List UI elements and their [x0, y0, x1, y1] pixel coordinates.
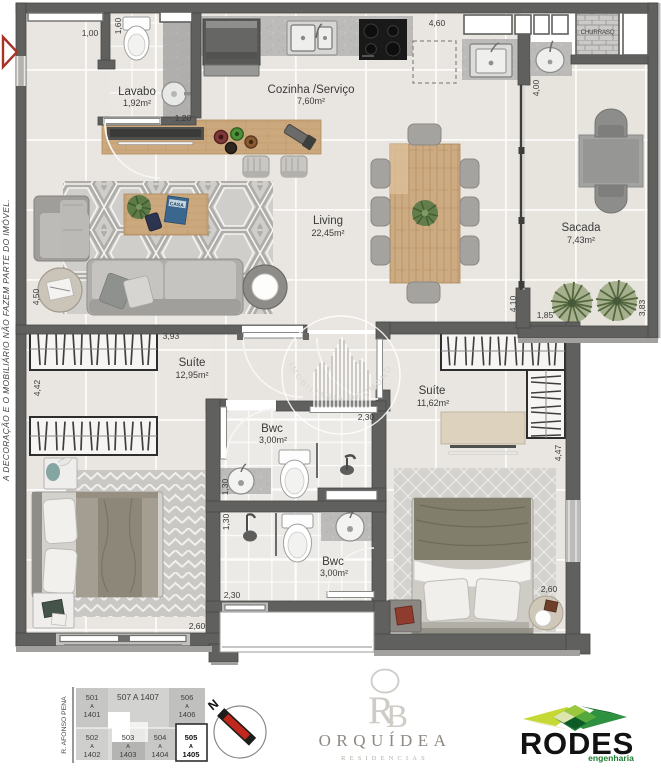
svg-text:3,83: 3,83 [637, 299, 647, 316]
svg-text:3,93: 3,93 [163, 331, 180, 341]
svg-text:506: 506 [181, 693, 194, 702]
svg-text:12,95m²: 12,95m² [175, 370, 208, 380]
svg-text:Sacada: Sacada [561, 222, 601, 234]
svg-text:22,45m²: 22,45m² [311, 228, 344, 238]
svg-text:4,50: 4,50 [31, 288, 41, 305]
svg-text:RESIDENCIAS: RESIDENCIAS [341, 755, 429, 762]
svg-text:1403: 1403 [120, 750, 137, 759]
svg-text:1401: 1401 [84, 710, 101, 719]
svg-text:1,00: 1,00 [82, 28, 99, 38]
svg-text:A DECORAÇÃO E O MOBILIÁRIO: A DECORAÇÃO E O MOBILIÁRIO NÃO FAZEM PAR… [1, 199, 11, 482]
svg-text:Suíte: Suíte [419, 385, 446, 397]
svg-text:1,20: 1,20 [175, 113, 192, 123]
svg-text:7,60m²: 7,60m² [297, 96, 325, 106]
svg-text:2,60: 2,60 [189, 621, 206, 631]
svg-text:1,92m²: 1,92m² [123, 98, 151, 108]
svg-text:3,00m²: 3,00m² [320, 568, 348, 578]
svg-text:1,85: 1,85 [537, 310, 554, 320]
svg-text:1405: 1405 [183, 750, 201, 759]
svg-text:4,47: 4,47 [553, 444, 563, 461]
svg-text:ORQUÍDEA: ORQUÍDEA [319, 731, 452, 750]
svg-text:1406: 1406 [179, 710, 196, 719]
svg-text:engenharia: engenharia [588, 753, 634, 763]
svg-text:2,30: 2,30 [224, 590, 241, 600]
svg-text:4,42: 4,42 [32, 379, 42, 396]
svg-text:505: 505 [185, 733, 198, 742]
svg-text:2,60: 2,60 [541, 584, 558, 594]
svg-text:R. AFONSO PENA: R. AFONSO PENA [61, 696, 68, 754]
svg-text:501: 501 [86, 693, 99, 702]
svg-text:Bwc: Bwc [261, 423, 283, 435]
svg-text:1404: 1404 [152, 750, 169, 759]
svg-text:CHURRASQ: CHURRASQ [581, 29, 615, 36]
svg-text:Suíte: Suíte [179, 357, 206, 369]
svg-text:Bwc: Bwc [322, 556, 344, 568]
svg-text:4,60: 4,60 [429, 18, 446, 28]
svg-text:1,60: 1,60 [113, 17, 123, 34]
svg-text:503: 503 [122, 733, 135, 742]
svg-text:502: 502 [86, 733, 99, 742]
svg-text:1,30: 1,30 [220, 478, 230, 495]
svg-text:1402: 1402 [84, 750, 101, 759]
svg-text:11,62m²: 11,62m² [417, 398, 449, 408]
svg-text:Living: Living [313, 215, 343, 227]
svg-text:1,30: 1,30 [221, 513, 231, 530]
svg-text:504: 504 [154, 733, 167, 742]
svg-text:Cozinha /Serviço: Cozinha /Serviço [268, 84, 355, 96]
svg-text:507 A 1407: 507 A 1407 [117, 692, 159, 702]
svg-text:Lavabo: Lavabo [118, 86, 156, 98]
svg-text:2,30: 2,30 [358, 412, 375, 422]
svg-text:4,10: 4,10 [508, 295, 518, 312]
svg-text:4,00: 4,00 [531, 79, 541, 96]
svg-text:7,43m²: 7,43m² [567, 235, 595, 245]
svg-text:3,00m²: 3,00m² [259, 435, 287, 445]
svg-text:B: B [386, 699, 408, 735]
